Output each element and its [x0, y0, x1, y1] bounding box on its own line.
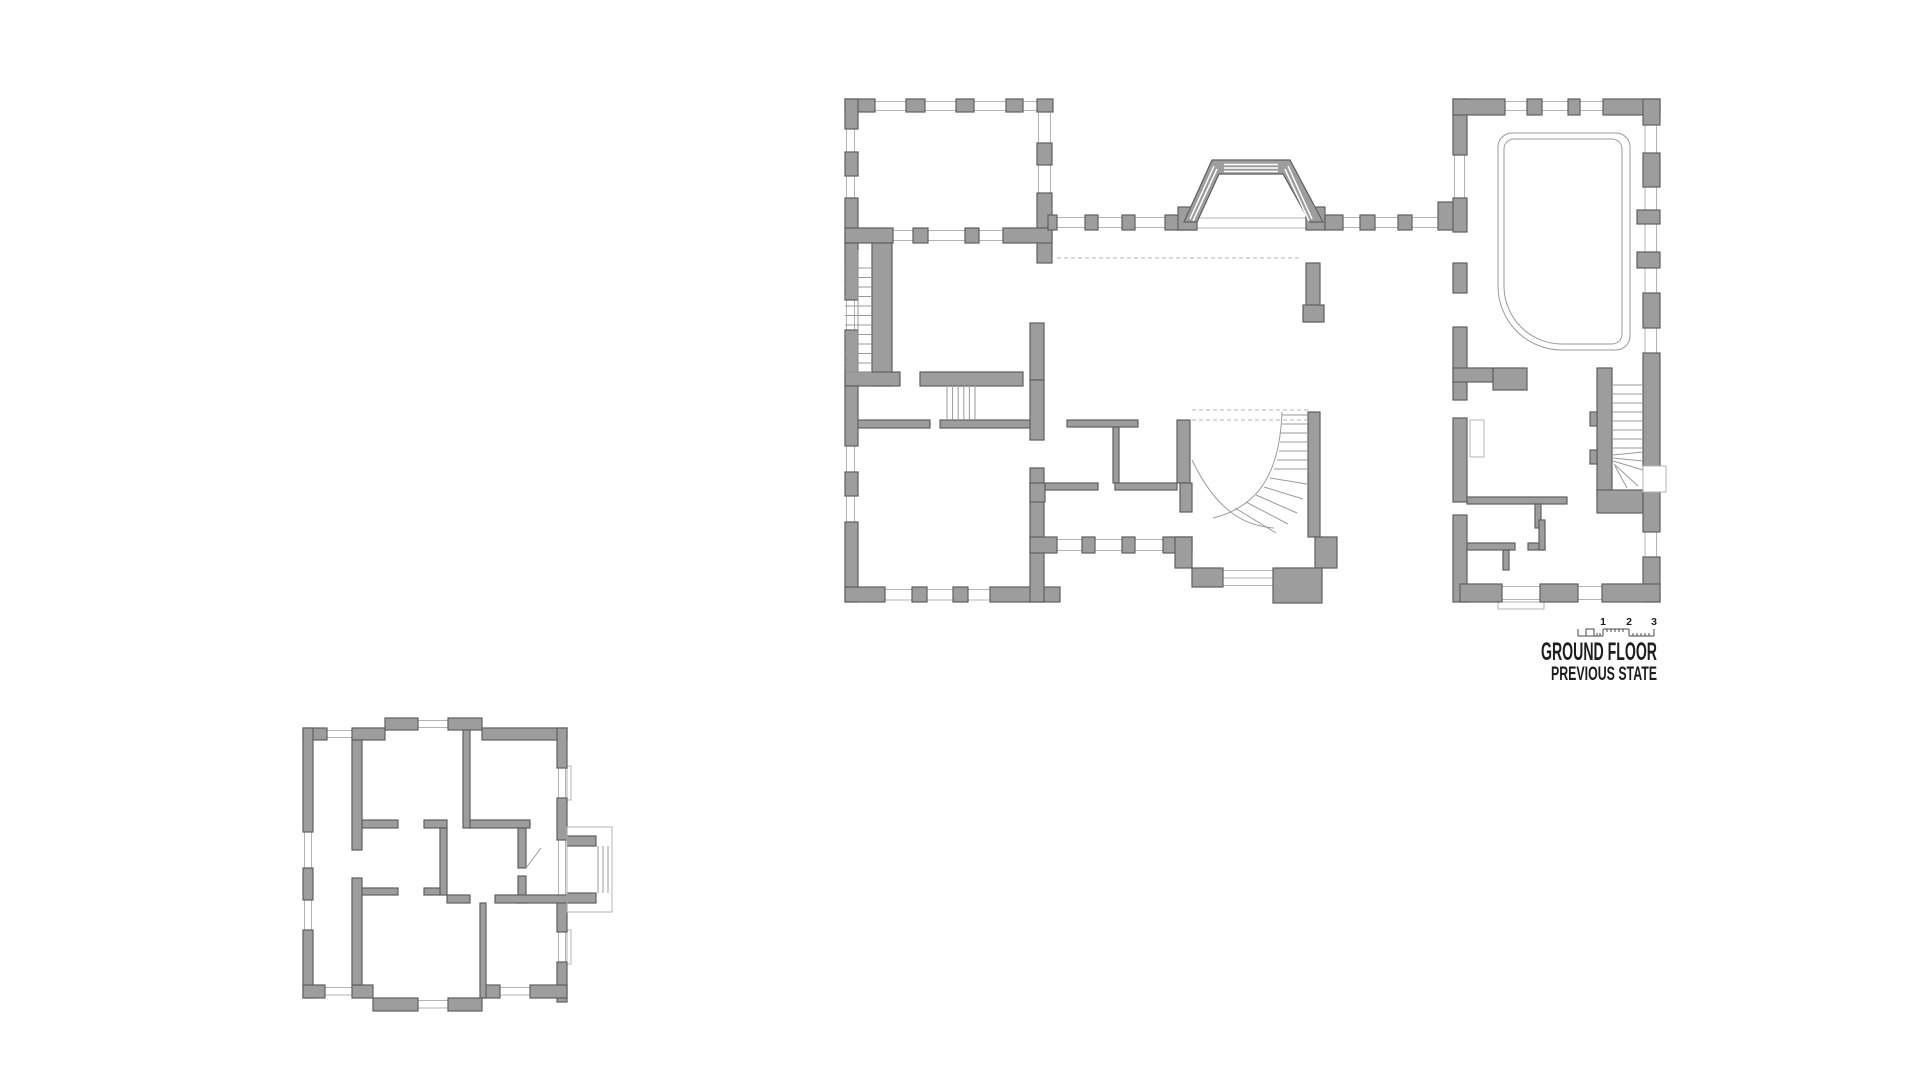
- scale-bar-ruler: [1578, 629, 1654, 636]
- scale-label-1: 1: [1600, 616, 1606, 628]
- plan-subtitle: PREVIOUS STATE: [1551, 664, 1657, 685]
- scale-label-2: 2: [1626, 616, 1632, 628]
- walls: [845, 99, 1660, 603]
- small-floor-plan: [303, 718, 612, 1011]
- stair-details: [845, 250, 1643, 533]
- pool-outline: [1498, 133, 1630, 350]
- large-floor-plan: [845, 99, 1666, 609]
- scale-bar: 1 2 3: [1578, 616, 1657, 636]
- plan-title: GROUND FLOOR: [1541, 638, 1657, 666]
- scale-label-3: 3: [1651, 616, 1657, 628]
- title-block: GROUND FLOOR PREVIOUS STATE: [1541, 638, 1657, 685]
- window-lines: [305, 721, 572, 1009]
- walls: [303, 718, 596, 1011]
- openings-and-niches: [1057, 258, 1666, 492]
- window-lines: [845, 99, 1657, 609]
- floor-plan-drawing: 1 2 3 GROUND FLOOR PREVIOUS STATE: [0, 0, 1920, 1080]
